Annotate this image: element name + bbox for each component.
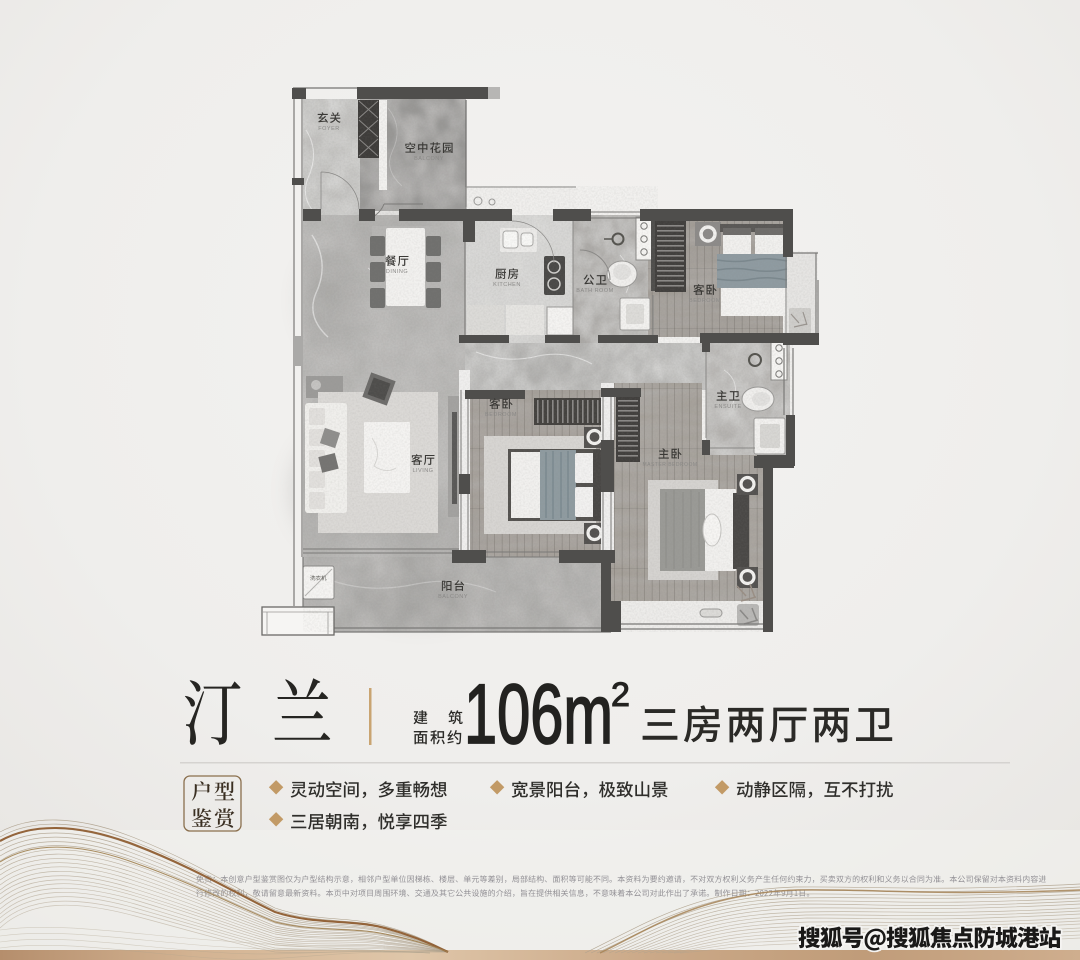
svg-text:BALCONY: BALCONY — [414, 156, 444, 162]
svg-text:DINING: DINING — [386, 269, 408, 275]
svg-text:BATH ROOM: BATH ROOM — [576, 288, 613, 294]
svg-text:ENSUITE: ENSUITE — [714, 404, 741, 410]
svg-text:BEDROOM: BEDROOM — [485, 412, 517, 418]
svg-text:106m: 106m — [464, 667, 613, 761]
svg-text:FOYER: FOYER — [318, 126, 339, 132]
svg-text:BEDROOM: BEDROOM — [689, 298, 721, 304]
svg-text:KITCHEN: KITCHEN — [493, 282, 521, 288]
svg-text:BALCONY: BALCONY — [438, 594, 468, 600]
svg-text:2: 2 — [611, 676, 630, 714]
svg-text:LIVING: LIVING — [412, 468, 433, 474]
svg-text:MASTER BEDROOM: MASTER BEDROOM — [642, 462, 697, 468]
